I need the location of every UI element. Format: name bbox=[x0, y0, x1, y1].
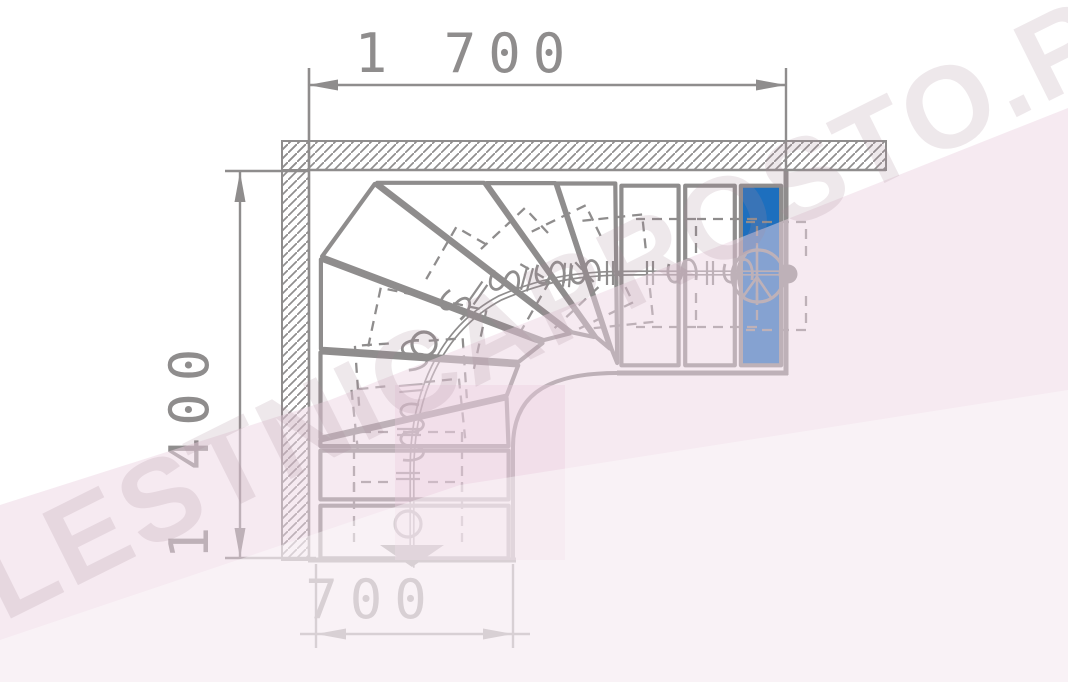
dimension-arrowhead-icon bbox=[235, 172, 246, 202]
dimension-label-top: 1 700 bbox=[355, 22, 578, 85]
dimension-arrowhead-icon bbox=[308, 80, 338, 91]
drawing-svg: 1 700 1 400 700 LESTNICAPROSTO.RU bbox=[0, 0, 1068, 682]
stair-plan-drawing: 1 700 1 400 700 LESTNICAPROSTO.RU bbox=[0, 0, 1068, 682]
dimension-arrowhead-icon bbox=[756, 80, 786, 91]
